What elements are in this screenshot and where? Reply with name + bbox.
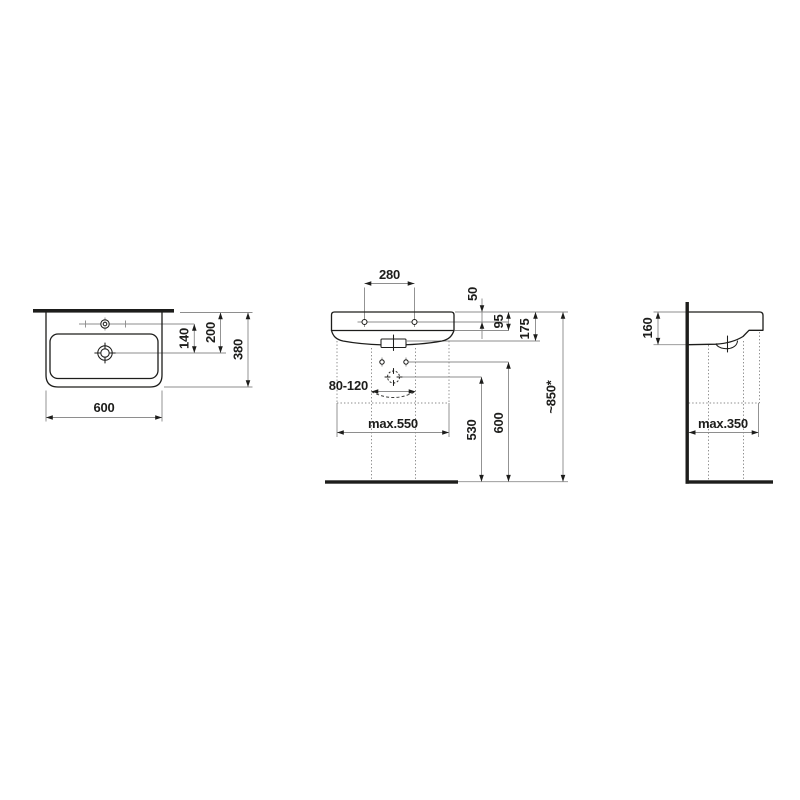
top-view: 140 200 380 600 xyxy=(33,309,253,422)
front-view-arrows xyxy=(337,281,565,482)
top-view-arrows xyxy=(46,313,250,420)
dim-label-width: 600 xyxy=(93,400,114,415)
dim-label-fixing-height: 600 xyxy=(491,412,506,433)
front-view: 280 50 95 175 80-120 max.550 530 600 ~85… xyxy=(325,267,568,484)
dim-label-rim-section-height: 160 xyxy=(640,317,655,338)
top-view-outline xyxy=(33,309,174,387)
dim-label-edge-to-drain: 200 xyxy=(203,322,218,343)
dim-label-installation-height: ~850* xyxy=(543,379,558,413)
dim-label-rim-to-hole: 50 xyxy=(465,287,480,301)
overflow-plug xyxy=(381,335,406,351)
siphon-fixing-holes xyxy=(380,358,408,367)
side-view-hidden-lines xyxy=(689,332,760,480)
top-view-extension-lines xyxy=(46,313,253,422)
wall-line-side-view xyxy=(686,302,689,484)
dim-label-outlet-height: 530 xyxy=(464,419,479,440)
wall-line-top-view xyxy=(33,309,174,313)
front-view-extension-lines xyxy=(337,284,568,482)
floor-line-side-view xyxy=(686,480,774,483)
front-view-labels: 280 50 95 175 80-120 max.550 530 600 ~85… xyxy=(329,267,559,441)
side-view-labels: 160 max.350 xyxy=(640,317,748,431)
dim-label-fixing-spacing: 280 xyxy=(379,267,400,282)
drain-hole xyxy=(95,343,115,363)
tap-hole xyxy=(101,318,109,331)
dim-label-apron-height: 175 xyxy=(517,318,532,339)
basin-profile xyxy=(689,312,763,345)
waste-outlet-hidden xyxy=(385,369,402,386)
dim-label-clearance-width: max.550 xyxy=(368,416,418,431)
basin-rim-front xyxy=(332,312,455,331)
fixing-hole-right xyxy=(412,317,417,327)
dim-label-clearance-depth: max.350 xyxy=(698,416,748,431)
dim-label-depth: 380 xyxy=(230,339,245,360)
floor-line-front-view xyxy=(325,480,458,483)
side-view: 160 max.350 xyxy=(640,302,773,484)
dim-label-outlet-range: 80-120 xyxy=(329,378,368,393)
dim-label-tap-to-drain: 140 xyxy=(176,328,191,349)
drawing-canvas: 140 200 380 600 xyxy=(0,0,800,800)
washbasin-technical-drawing: 140 200 380 600 xyxy=(0,0,800,800)
fixing-hole-left xyxy=(362,317,367,327)
top-view-labels: 140 200 380 600 xyxy=(93,322,245,415)
dim-label-rim-underside: 95 xyxy=(491,314,506,328)
